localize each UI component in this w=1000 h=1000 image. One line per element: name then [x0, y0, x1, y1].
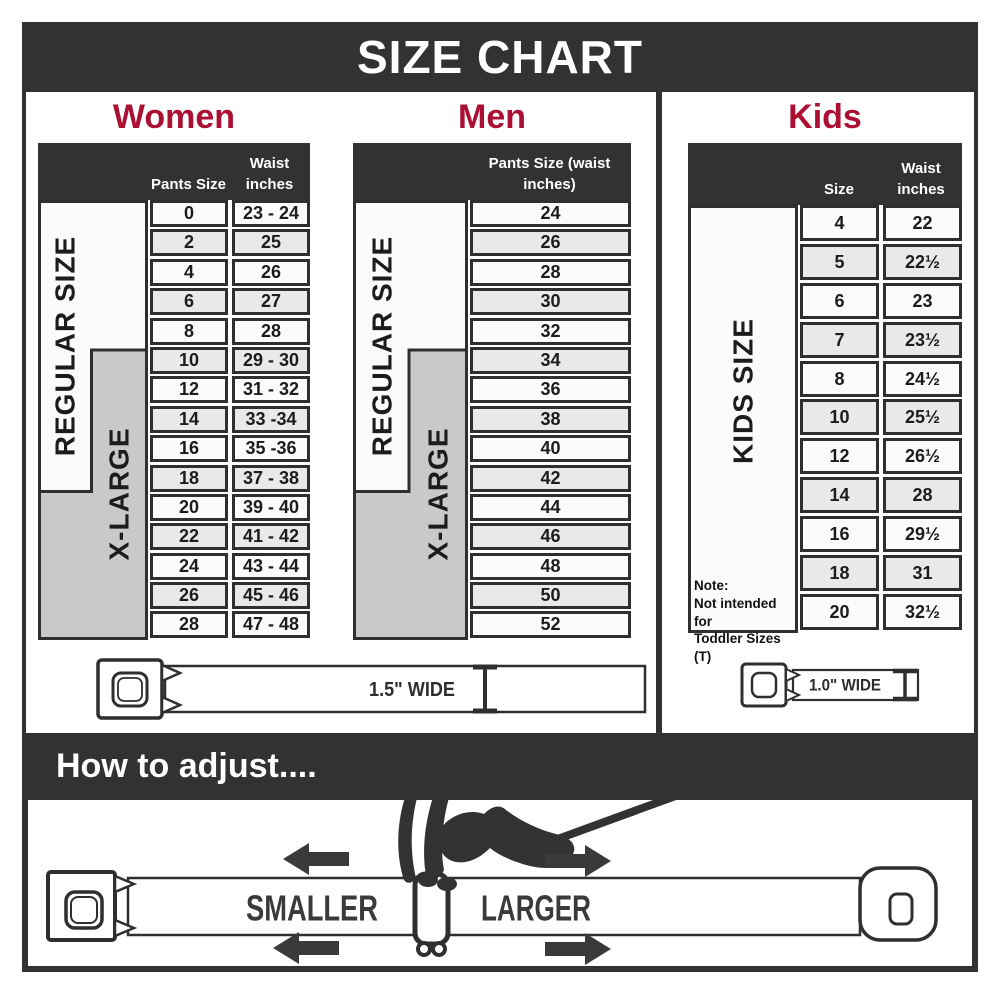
adult-belt-illustration: 1.5" WIDE [40, 650, 652, 730]
table-row: 50 [470, 582, 631, 609]
table-row: 828 [150, 318, 310, 345]
table-cell: 2 [150, 229, 228, 256]
table-cell: 28 [883, 477, 962, 513]
panel-right-border [974, 92, 978, 733]
how-to-adjust-heading: How to adjust.... [22, 733, 978, 800]
table-cell: 41 - 42 [232, 523, 310, 550]
table-cell: 14 [800, 477, 879, 513]
slider-loop [418, 943, 430, 955]
table-cell: 25 [232, 229, 310, 256]
table-cell: 12 [800, 438, 879, 474]
table-cell: 20 [150, 494, 228, 521]
slider-loop [433, 943, 445, 955]
larger-label: LARGER [481, 888, 591, 929]
table-cell: 23½ [883, 322, 962, 358]
strap-tip-hole [890, 894, 912, 924]
men-table-header: Pants Size (waist inches) [353, 143, 631, 200]
table-cell: 32½ [883, 594, 962, 630]
table-cell: 10 [150, 347, 228, 374]
table-cell: 8 [150, 318, 228, 345]
table-row: 46 [470, 523, 631, 550]
loose-strap [544, 800, 692, 844]
table-row: 023 - 24 [150, 200, 310, 227]
table-row: 1837 - 38 [150, 465, 310, 492]
table-row: 723½ [800, 322, 962, 358]
table-row: 225 [150, 229, 310, 256]
table-cell: 16 [800, 516, 879, 552]
table-row: 1025½ [800, 399, 962, 435]
kids-table: 422522½623723½824½1025½1226½14281629½183… [800, 205, 962, 633]
table-row: 38 [470, 406, 631, 433]
men-heading: Men [353, 96, 631, 138]
table-cell: 4 [800, 205, 879, 241]
table-row: 627 [150, 288, 310, 315]
table-row: 1629½ [800, 516, 962, 552]
table-row: 28 [470, 259, 631, 286]
table-row: 1226½ [800, 438, 962, 474]
men-size-bands: REGULAR SIZE X-LARGE [353, 200, 468, 640]
adjust-belt-illustration: SMALLER LARGER [28, 800, 972, 966]
table-cell: 23 - 24 [232, 200, 310, 227]
table-row: 42 [470, 465, 631, 492]
women-heading: Women [38, 96, 310, 138]
table-cell: 45 - 46 [232, 582, 310, 609]
table-cell: 31 - 32 [232, 376, 310, 403]
table-row: 1831 [800, 555, 962, 591]
table-cell: 36 [470, 376, 631, 403]
table-cell: 18 [800, 555, 879, 591]
table-row: 2645 - 46 [150, 582, 310, 609]
table-cell: 37 - 38 [232, 465, 310, 492]
note-line: Not intended for [694, 595, 796, 631]
table-cell: 25½ [883, 399, 962, 435]
table-cell: 48 [470, 553, 631, 580]
table-row: 2443 - 44 [150, 553, 310, 580]
table-cell: 42 [470, 465, 631, 492]
table-row: 2039 - 40 [150, 494, 310, 521]
table-cell: 0 [150, 200, 228, 227]
table-row: 522½ [800, 244, 962, 280]
table-cell: 32 [470, 318, 631, 345]
men-col-pants-size: Pants Size (waist inches) [468, 153, 631, 195]
table-row: 48 [470, 553, 631, 580]
table-row: 30 [470, 288, 631, 315]
table-cell: 24 [470, 200, 631, 227]
kids-heading: Kids [688, 96, 962, 138]
buckle-button-inner [71, 897, 97, 923]
table-row: 34 [470, 347, 631, 374]
kids-col-size: Size [798, 179, 880, 200]
table-cell: 12 [150, 376, 228, 403]
table-cell: 16 [150, 435, 228, 462]
women-table-header: Pants Size Waist inches [38, 143, 310, 200]
women-col-waist: Waist inches [229, 153, 310, 195]
table-cell: 5 [800, 244, 879, 280]
table-cell: 26 [232, 259, 310, 286]
size-chart-page: SIZE CHART Women Men Kids Pants Size Wai… [0, 0, 1000, 1000]
x-large-label: X-LARGE [423, 428, 454, 561]
kids-belt-illustration: 1.0" WIDE [725, 650, 935, 730]
table-cell: 44 [470, 494, 631, 521]
table-cell: 29½ [883, 516, 962, 552]
table-cell: 43 - 44 [232, 553, 310, 580]
table-cell: 26 [470, 229, 631, 256]
table-row: 44 [470, 494, 631, 521]
note-line: Note: [694, 577, 796, 595]
adult-belt-width-label: 1.5" WIDE [369, 679, 455, 701]
table-cell: 6 [150, 288, 228, 315]
table-cell: 27 [232, 288, 310, 315]
regular-size-label: REGULAR SIZE [367, 236, 398, 456]
table-row: 32 [470, 318, 631, 345]
table-row: 2847 - 48 [150, 611, 310, 638]
table-row: 426 [150, 259, 310, 286]
page-title: SIZE CHART [22, 22, 978, 92]
table-row: 1433 -34 [150, 406, 310, 433]
table-cell: 28 [150, 611, 228, 638]
table-row: 1635 -36 [150, 435, 310, 462]
kids-belt-width-label: 1.0" WIDE [809, 676, 881, 695]
table-row: 40 [470, 435, 631, 462]
table-cell: 30 [470, 288, 631, 315]
table-row: 824½ [800, 361, 962, 397]
table-row: 623 [800, 283, 962, 319]
table-row: 2241 - 42 [150, 523, 310, 550]
table-row: 1428 [800, 477, 962, 513]
table-cell: 10 [800, 399, 879, 435]
table-row: 1029 - 30 [150, 347, 310, 374]
table-cell: 26 [150, 582, 228, 609]
table-cell: 34 [470, 347, 631, 374]
table-row: 26 [470, 229, 631, 256]
table-cell: 39 - 40 [232, 494, 310, 521]
table-cell: 40 [470, 435, 631, 462]
table-cell: 6 [800, 283, 879, 319]
table-cell: 4 [150, 259, 228, 286]
table-row: 36 [470, 376, 631, 403]
table-cell: 14 [150, 406, 228, 433]
panel-left-border [22, 92, 26, 733]
buckle-button-inner [118, 678, 142, 701]
table-cell: 23 [883, 283, 962, 319]
arrow-left-icon [273, 932, 339, 964]
kids-size-label: KIDS SIZE [728, 318, 759, 464]
kids-table-header: Size Waist inches [688, 143, 962, 205]
smaller-label: SMALLER [246, 888, 378, 929]
table-row: 52 [470, 611, 631, 638]
table-cell: 22 [150, 523, 228, 550]
table-cell: 22½ [883, 244, 962, 280]
kids-col-waist: Waist inches [880, 158, 962, 200]
x-large-label: X-LARGE [104, 428, 135, 561]
buckle-button-outer [752, 673, 776, 697]
table-cell: 47 - 48 [232, 611, 310, 638]
table-cell: 50 [470, 582, 631, 609]
table-cell: 24½ [883, 361, 962, 397]
table-cell: 22 [883, 205, 962, 241]
table-cell: 18 [150, 465, 228, 492]
table-cell: 28 [470, 259, 631, 286]
table-cell: 20 [800, 594, 879, 630]
men-table: 242628303234363840424446485052 [470, 200, 631, 641]
table-cell: 7 [800, 322, 879, 358]
women-table: 023 - 242254266278281029 - 301231 - 3214… [150, 200, 310, 641]
table-cell: 31 [883, 555, 962, 591]
table-cell: 24 [150, 553, 228, 580]
table-cell: 52 [470, 611, 631, 638]
kids-section-divider [656, 92, 662, 733]
table-row: 1231 - 32 [150, 376, 310, 403]
table-cell: 26½ [883, 438, 962, 474]
table-row: 422 [800, 205, 962, 241]
table-cell: 46 [470, 523, 631, 550]
adjust-illustration-panel: SMALLER LARGER [22, 800, 978, 972]
kids-size-band: KIDS SIZE [688, 205, 798, 633]
arrow-right-icon [545, 933, 611, 965]
women-size-bands: REGULAR SIZE X-LARGE [38, 200, 148, 640]
table-cell: 28 [232, 318, 310, 345]
table-row: 2032½ [800, 594, 962, 630]
table-cell: 33 -34 [232, 406, 310, 433]
women-col-pants-size: Pants Size [148, 174, 229, 195]
table-cell: 29 - 30 [232, 347, 310, 374]
table-cell: 8 [800, 361, 879, 397]
arrow-left-icon [283, 843, 349, 875]
regular-size-label: REGULAR SIZE [50, 236, 81, 456]
table-cell: 38 [470, 406, 631, 433]
table-cell: 35 -36 [232, 435, 310, 462]
table-row: 24 [470, 200, 631, 227]
